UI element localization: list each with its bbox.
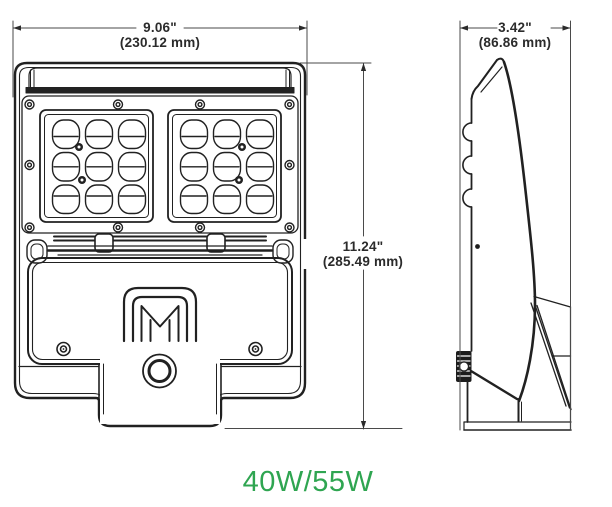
adjustment-knob (456, 351, 472, 382)
height-mm: (285.49 mm) (302, 254, 424, 269)
height-inches: 11.24" (302, 239, 424, 254)
photocell-port (143, 355, 176, 388)
mounting-arm (531, 297, 571, 410)
width-mm: (230.12 mm) (13, 35, 307, 50)
width-inches: 9.06" (13, 20, 307, 35)
housing-back-curve (504, 62, 535, 401)
depth-dimension-label: 3.42" (86.86 mm) (448, 20, 582, 50)
width-dimension-label: 9.06" (230.12 mm) (13, 20, 307, 50)
depth-inches: 3.42" (448, 20, 582, 35)
height-dimension-label: 11.24" (285.49 mm) (302, 239, 424, 269)
dimension-drawing-page: 9.06" (230.12 mm) 3.42" (86.86 mm) 11.24… (0, 0, 612, 507)
side-view-drawing (456, 59, 571, 430)
depth-mm: (86.86 mm) (448, 35, 582, 50)
arm-brace (471, 371, 517, 399)
side-indicator-dot (475, 244, 480, 249)
wattage-label: 40W/55W (228, 465, 388, 499)
front-view-drawing (15, 63, 305, 426)
